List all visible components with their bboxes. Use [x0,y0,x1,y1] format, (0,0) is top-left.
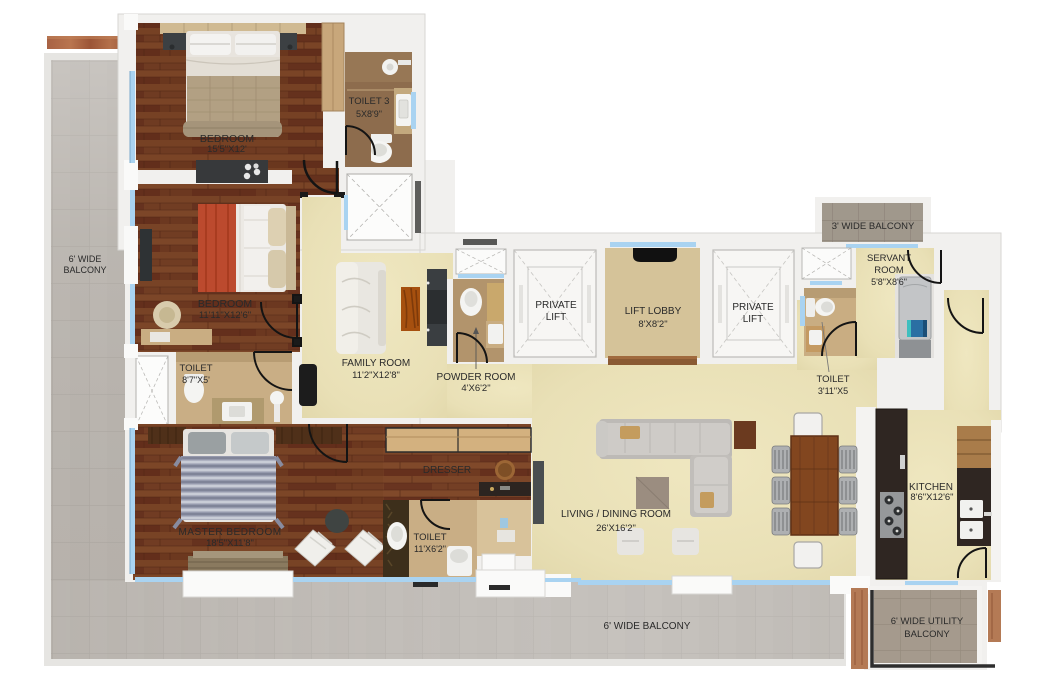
svg-text:6' WIDE: 6' WIDE [69,254,102,264]
svg-text:8'7"X5': 8'7"X5' [182,375,210,385]
svg-text:26'X16'2": 26'X16'2" [596,523,636,534]
svg-text:15'5"X12': 15'5"X12' [207,144,247,155]
svg-text:PRIVATE: PRIVATE [732,302,774,313]
svg-text:TOILET: TOILET [179,363,212,374]
svg-text:LIFT: LIFT [743,314,764,325]
svg-text:4'X6'2": 4'X6'2" [461,383,490,394]
svg-text:6' WIDE UTILITY: 6' WIDE UTILITY [891,616,964,627]
svg-text:POWDER ROOM: POWDER ROOM [437,372,516,383]
svg-text:LIVING / DINING ROOM: LIVING / DINING ROOM [561,509,671,520]
svg-text:5X8'9": 5X8'9" [356,109,382,119]
svg-text:3' WIDE BALCONY: 3' WIDE BALCONY [832,221,915,232]
svg-text:3'11"X5: 3'11"X5 [818,386,848,396]
svg-text:PRIVATE: PRIVATE [535,300,577,311]
svg-text:LIFT: LIFT [546,312,567,323]
svg-text:DRESSER: DRESSER [423,465,471,476]
svg-text:SERVANT: SERVANT [867,253,911,264]
svg-text:BALCONY: BALCONY [63,265,106,275]
svg-text:TOILET: TOILET [816,374,849,385]
svg-text:BALCONY: BALCONY [904,629,950,640]
svg-text:11'11"X12'6": 11'11"X12'6" [199,310,251,321]
svg-text:8'6"X12'6": 8'6"X12'6" [910,492,953,503]
svg-text:5'8"X8'6": 5'8"X8'6" [871,277,907,287]
svg-text:TOILET: TOILET [413,532,446,543]
svg-text:8'X8'2": 8'X8'2" [638,319,667,330]
svg-text:ROOM: ROOM [874,265,904,276]
svg-text:MASTER BEDROOM: MASTER BEDROOM [178,527,281,538]
svg-text:LIFT LOBBY: LIFT LOBBY [625,306,682,317]
svg-text:11'2"X12'8": 11'2"X12'8" [352,370,400,381]
svg-text:11'X6'2": 11'X6'2" [414,544,446,554]
svg-text:TOILET 3: TOILET 3 [349,96,390,107]
svg-text:BEDROOM: BEDROOM [198,298,252,310]
svg-text:6' WIDE BALCONY: 6' WIDE BALCONY [604,621,691,632]
svg-text:FAMILY ROOM: FAMILY ROOM [342,358,411,369]
svg-text:18'5"X11'8": 18'5"X11'8" [206,538,254,549]
